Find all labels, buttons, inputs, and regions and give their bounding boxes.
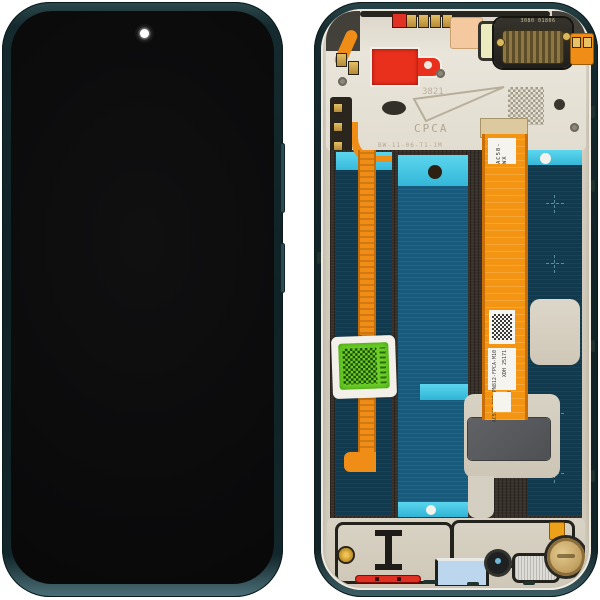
gold-pad (348, 61, 359, 75)
sticker-backing (331, 335, 397, 399)
screw-hole (570, 123, 579, 132)
phone-front-view (2, 2, 283, 597)
frame-notch (467, 582, 479, 586)
frame-notch (523, 581, 535, 585)
adhesive-region: JC51B AZ 8537 (330, 150, 582, 518)
flex-band-code: XDH 25171 (502, 350, 508, 377)
etched-brand-text: CPCA (414, 122, 449, 135)
bottom-frame-section (327, 518, 585, 586)
screw-hole (436, 69, 445, 78)
cyan-tape-center (398, 155, 468, 189)
flex-top-label: AC58-WX (488, 138, 516, 164)
gold-pad (572, 37, 581, 48)
alignment-i-mark-bottom (375, 564, 402, 570)
earpiece-grille (502, 30, 564, 64)
display-screen (11, 11, 274, 584)
side-notch (591, 180, 595, 192)
adhesive-panel-center (398, 186, 468, 506)
adhesive-oval (382, 101, 406, 115)
side-notch (591, 470, 595, 482)
earpiece-contact-dot (496, 38, 505, 47)
side-notch (591, 340, 595, 352)
gold-pad (333, 103, 343, 113)
frame-notch (423, 580, 437, 584)
alignment-i-mark-top (375, 530, 402, 536)
gold-contact (418, 14, 429, 28)
graphite-pad (468, 418, 550, 460)
gold-pad (336, 53, 347, 67)
alignment-hole (554, 99, 565, 110)
side-notch (317, 252, 321, 264)
cyan-band-bottom (398, 502, 468, 517)
green-qr-sticker (338, 342, 390, 390)
alignment-cross (546, 255, 564, 273)
earpiece-speaker: 3080 01806 (494, 18, 572, 68)
flex-top-label-text: AC58-WX (496, 140, 508, 164)
sticker-text-lines (379, 347, 386, 383)
vibration-motor (547, 538, 585, 576)
alignment-cross (546, 195, 564, 213)
panel-cutout (530, 299, 580, 365)
qr-code (342, 348, 377, 385)
gold-pad (333, 122, 343, 132)
power-button (280, 243, 285, 293)
red-component (392, 13, 407, 28)
etched-number-text: 3821 (422, 87, 444, 97)
qr-code (492, 314, 512, 340)
flex-qr-label (489, 310, 515, 344)
side-contact-pads (330, 97, 352, 153)
left-flex-foot (344, 452, 376, 472)
gold-pad (583, 37, 592, 48)
main-flex-cable: AC58-WX BW68010-M00-X001 AC51B-BOE PN812… (482, 134, 528, 420)
top-left-flex (336, 25, 366, 71)
cyan-band-middle (420, 384, 468, 400)
strip-gap (375, 577, 379, 581)
bottom-sensor-hole (487, 552, 509, 574)
flex-white-band: AC51B-BOE PN812-FPCA-M10 XDH 25171 (488, 348, 516, 390)
tape-hole-white (426, 505, 436, 515)
motor-slot (557, 554, 575, 558)
sensor-lens (495, 558, 501, 564)
plate-tab (468, 476, 494, 518)
gold-contact (406, 14, 417, 28)
camera-ring (135, 24, 154, 43)
red-adhesive-strip (355, 575, 421, 583)
volume-button (280, 143, 285, 213)
earpiece-label: 3080 01806 (518, 19, 558, 24)
gold-screw (339, 548, 353, 562)
screw-hole (338, 77, 347, 86)
antenna-flex (570, 33, 594, 65)
pull-tab-hole (424, 61, 432, 69)
side-notch (591, 106, 595, 118)
flex-tail-label (493, 392, 511, 412)
gold-contact-row (406, 13, 454, 29)
tape-hole (428, 165, 442, 179)
phone-back-view: 3080 01806 3821 CPCA (314, 2, 598, 597)
tape-hole-white (540, 153, 551, 164)
strip-gap (397, 577, 401, 581)
charging-port-pad (435, 558, 489, 586)
gold-contact (430, 14, 441, 28)
punch-hole-camera (140, 29, 149, 38)
